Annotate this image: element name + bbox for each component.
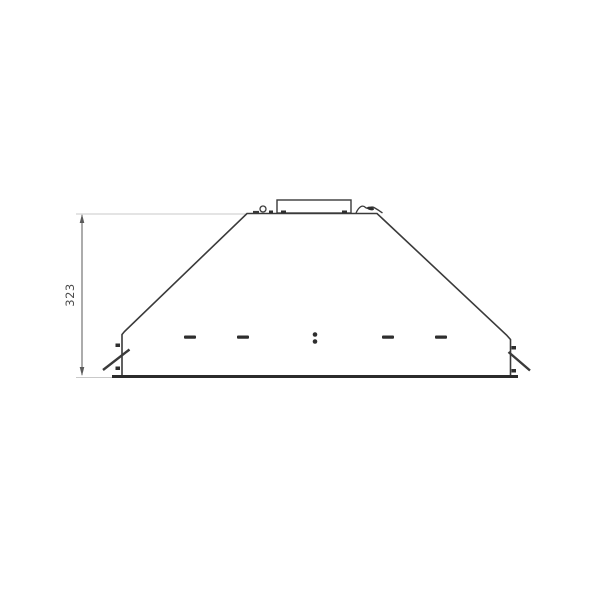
duct-collar-outline [277, 200, 351, 213]
spring-clip-left-catch-bottom [116, 367, 121, 371]
hanger-hook-left [253, 206, 273, 213]
dimension-323: 323 [63, 214, 84, 376]
duct-collar [277, 200, 351, 213]
hanger-tab-right [269, 211, 273, 214]
spring-clip-right-catch-bottom [512, 369, 517, 373]
spring-clip-right-arm [509, 352, 531, 371]
dimension-value-label: 323 [63, 283, 77, 306]
front-slot-3 [382, 336, 394, 339]
hood-elevation-drawing: 323 [0, 0, 600, 600]
front-dot-top [313, 332, 318, 337]
hanger-ring-icon [260, 206, 266, 212]
dimension-arrow-up-icon [80, 214, 85, 223]
collar-foot-left [281, 211, 286, 214]
front-slot-2 [237, 336, 249, 339]
hood-body [112, 214, 518, 377]
dimension-arrow-down-icon [80, 367, 85, 376]
spring-clip-right [509, 346, 531, 373]
spring-clip-left-catch-top [116, 344, 121, 348]
hood-outline [122, 214, 511, 376]
front-slot-1 [184, 336, 196, 339]
mounting-clip-right [356, 206, 383, 213]
spring-clip-right-catch-top [512, 346, 517, 350]
technical-drawing-canvas: 323 [0, 0, 600, 600]
front-dot-bottom [313, 339, 318, 344]
front-slot-4 [435, 336, 447, 339]
collar-foot-right [342, 211, 347, 214]
